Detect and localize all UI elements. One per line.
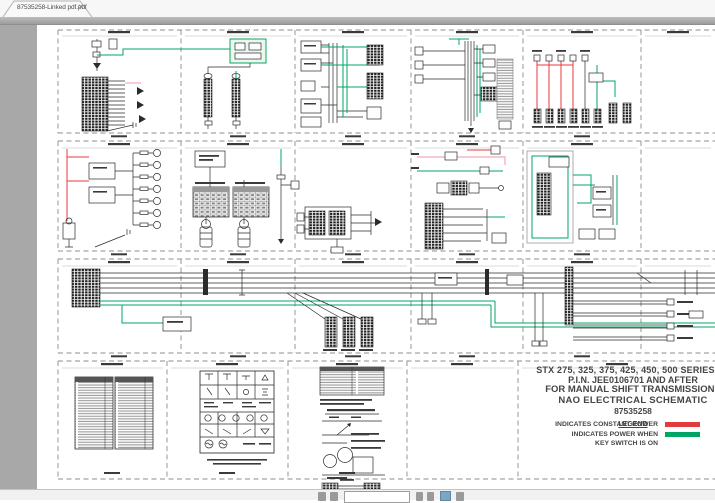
row2-lighting-circuit	[63, 149, 161, 247]
legend-row-constant-power: INDICATES CONSTANT POWER	[487, 421, 700, 429]
title-line-1: STX 275, 325, 375, 425, 450, 500 SERIES …	[487, 365, 715, 375]
row1-alternator-circuit	[301, 41, 383, 127]
row4-wire-index-table	[75, 377, 153, 449]
constant-power-swatch	[665, 422, 700, 427]
tab-close-icon[interactable]: ✕	[78, 4, 84, 11]
row1-cab-harness-circuit	[415, 39, 513, 133]
row2-sensor-harness	[411, 146, 506, 249]
legend-rows: INDICATES CONSTANT POWER INDICATES POWER…	[487, 421, 700, 450]
row3-main-harness-buses	[72, 267, 715, 351]
pdf-page: STX 275, 325, 375, 425, 450, 500 SERIES …	[37, 25, 715, 489]
bottom-toolbar	[0, 489, 715, 500]
legend-label-key-on-power: INDICATES POWER WHEN KEY SWITCH IS ON	[572, 431, 658, 448]
row1-key-switch-circuit	[204, 39, 266, 129]
row2-fuse-and-relay-boxes	[193, 149, 299, 247]
pdf-tab[interactable]: 87535258-Linked pdf.pdf ✕	[2, 0, 98, 17]
title-block: STX 275, 325, 375, 425, 450, 500 SERIES …	[487, 365, 715, 429]
row4-symbols-chart	[200, 371, 274, 465]
page-number-input[interactable]	[344, 491, 410, 503]
tab-title: 87535258-Linked pdf.pdf	[17, 4, 87, 11]
title-line-4: NAO ELECTRICAL SCHEMATIC	[487, 396, 715, 407]
legend-row-key-on-power: INDICATES POWER WHEN KEY SWITCH IS ON	[487, 431, 700, 448]
row1-power-distribution-circuit	[532, 50, 631, 128]
row2-controller-circuit	[527, 151, 617, 243]
key-on-power-swatch	[665, 432, 700, 437]
row1-battery-starting-circuit	[82, 39, 237, 131]
row4-color-code-and-drawing-legend	[320, 367, 385, 489]
title-part-number: 87535258	[487, 407, 715, 417]
pdf-viewer-background: STX 275, 325, 375, 425, 450, 500 SERIES …	[0, 25, 715, 489]
toolbar-strip	[0, 17, 715, 25]
legend-label-constant-power: INDICATES CONSTANT POWER	[555, 421, 658, 429]
tab-bar: 87535258-Linked pdf.pdf ✕	[0, 0, 715, 17]
row2-connector-cluster	[297, 207, 382, 253]
